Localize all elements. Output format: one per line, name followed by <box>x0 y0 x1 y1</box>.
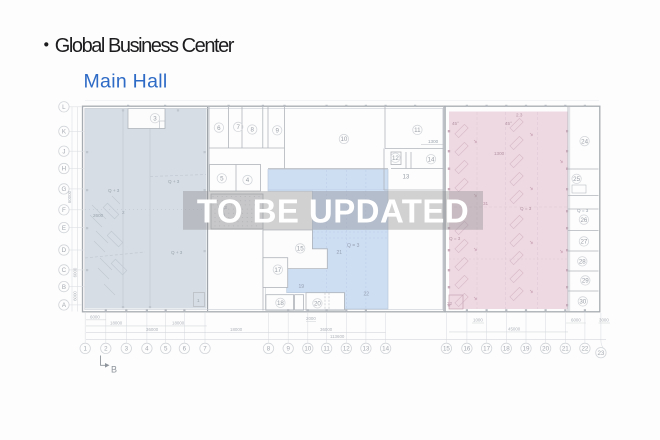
svg-text:Q = 3: Q = 3 <box>520 206 532 211</box>
svg-text:6000: 6000 <box>73 291 78 301</box>
svg-text:18: 18 <box>503 346 510 353</box>
svg-text:30: 30 <box>579 299 586 306</box>
svg-text:3: 3 <box>125 346 129 353</box>
svg-text:18000: 18000 <box>172 320 185 325</box>
svg-text:36000: 36000 <box>320 327 333 332</box>
svg-text:8: 8 <box>250 127 254 134</box>
svg-text:H: H <box>62 166 66 173</box>
svg-text:6: 6 <box>183 346 187 353</box>
svg-text:21: 21 <box>562 346 569 353</box>
svg-text:113600: 113600 <box>330 334 345 339</box>
svg-text:25: 25 <box>573 176 580 183</box>
svg-text:22: 22 <box>581 346 588 353</box>
svg-text:TO BE UPDATED: TO BE UPDATED <box>197 193 469 230</box>
svg-text:10: 10 <box>340 136 347 143</box>
svg-text:29: 29 <box>582 278 589 285</box>
svg-text:Q = 3: Q = 3 <box>449 236 461 241</box>
svg-text:2: 2 <box>104 346 108 353</box>
svg-text:7: 7 <box>203 346 207 353</box>
svg-text:8: 8 <box>267 346 271 353</box>
svg-text:17: 17 <box>483 346 490 353</box>
svg-text:3: 3 <box>153 115 157 122</box>
svg-text:1: 1 <box>83 346 87 353</box>
svg-text:9: 9 <box>275 128 279 135</box>
svg-text:11: 11 <box>414 127 421 134</box>
svg-text:6000: 6000 <box>73 267 78 277</box>
svg-text:7: 7 <box>236 124 240 131</box>
svg-text:C: C <box>62 267 67 274</box>
svg-text:28: 28 <box>579 259 586 266</box>
svg-text:45°: 45° <box>505 121 512 126</box>
svg-text:15: 15 <box>443 346 450 353</box>
svg-text:F: F <box>62 207 66 214</box>
svg-text:22: 22 <box>364 292 370 298</box>
svg-text:10: 10 <box>304 346 311 353</box>
svg-text:6000: 6000 <box>571 318 581 323</box>
svg-text:D: D <box>62 247 67 254</box>
svg-text:5: 5 <box>220 176 224 183</box>
svg-text:31: 31 <box>483 201 489 206</box>
svg-text:L: L <box>62 104 66 111</box>
svg-text:14: 14 <box>428 156 435 163</box>
svg-text:1: 1 <box>197 298 200 303</box>
svg-text:Q + 3: Q + 3 <box>168 179 180 184</box>
svg-text:2600: 2600 <box>93 213 104 218</box>
svg-text:60000: 60000 <box>67 190 72 203</box>
svg-text:12: 12 <box>343 346 350 353</box>
svg-text:J: J <box>62 148 65 155</box>
svg-text:2000: 2000 <box>306 316 316 321</box>
svg-text:45°: 45° <box>452 121 459 126</box>
svg-text:1300: 1300 <box>494 151 505 156</box>
svg-text:B: B <box>62 284 66 291</box>
svg-text:18000: 18000 <box>230 327 243 332</box>
svg-text:45000: 45000 <box>508 326 521 331</box>
svg-text:13: 13 <box>402 173 409 180</box>
svg-text:19: 19 <box>299 284 305 290</box>
svg-text:2: 2 <box>122 210 125 215</box>
svg-text:Main Hall: Main Hall <box>84 71 168 93</box>
svg-text:Global Business Center: Global Business Center <box>55 35 235 57</box>
svg-text:3000: 3000 <box>599 318 609 323</box>
svg-text:6000: 6000 <box>90 314 100 319</box>
svg-text:14: 14 <box>382 346 389 353</box>
svg-text:18: 18 <box>277 300 284 307</box>
svg-text:17: 17 <box>274 267 281 274</box>
svg-text:20: 20 <box>314 301 321 308</box>
svg-text:Q = 3: Q = 3 <box>347 243 360 249</box>
svg-text:11: 11 <box>323 346 330 353</box>
svg-text:36000: 36000 <box>146 327 159 332</box>
svg-text:26: 26 <box>580 217 587 224</box>
svg-text:1300: 1300 <box>428 139 439 144</box>
svg-text:12: 12 <box>392 155 399 162</box>
svg-text:4: 4 <box>246 177 250 184</box>
svg-text:Q + 3: Q + 3 <box>108 188 120 193</box>
svg-text:Q = 3: Q = 3 <box>577 208 589 213</box>
svg-text:23: 23 <box>597 350 604 357</box>
svg-text:2.3: 2.3 <box>516 113 523 118</box>
svg-text:5: 5 <box>164 346 168 353</box>
svg-text:21: 21 <box>337 250 343 256</box>
svg-text:16: 16 <box>463 346 470 353</box>
svg-text:B: B <box>111 365 117 375</box>
svg-text:4: 4 <box>145 346 149 353</box>
svg-text:24: 24 <box>581 138 588 145</box>
svg-text:Q + 3: Q + 3 <box>171 250 183 255</box>
svg-text:E: E <box>62 225 66 232</box>
svg-text:20: 20 <box>542 346 549 353</box>
svg-text:9: 9 <box>286 346 290 353</box>
svg-text:13: 13 <box>362 346 369 353</box>
svg-text:18000: 18000 <box>110 320 123 325</box>
svg-text:6: 6 <box>217 125 221 132</box>
svg-text:1000: 1000 <box>473 318 483 323</box>
svg-text:15: 15 <box>297 246 304 253</box>
svg-text:19: 19 <box>523 346 530 353</box>
svg-text:G: G <box>61 186 66 193</box>
svg-text:27: 27 <box>580 239 587 246</box>
